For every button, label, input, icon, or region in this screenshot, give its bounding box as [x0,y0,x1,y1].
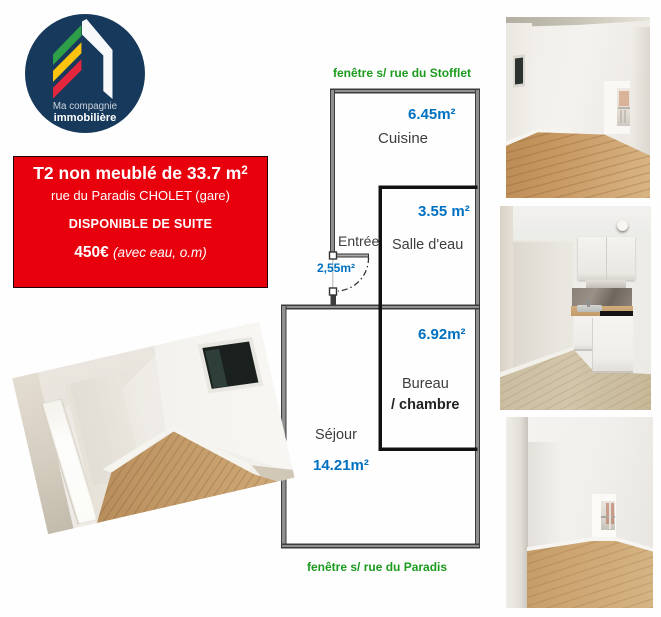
svg-text:immobilière: immobilière [54,112,117,124]
svg-text:Ma compagnie: Ma compagnie [53,101,118,112]
